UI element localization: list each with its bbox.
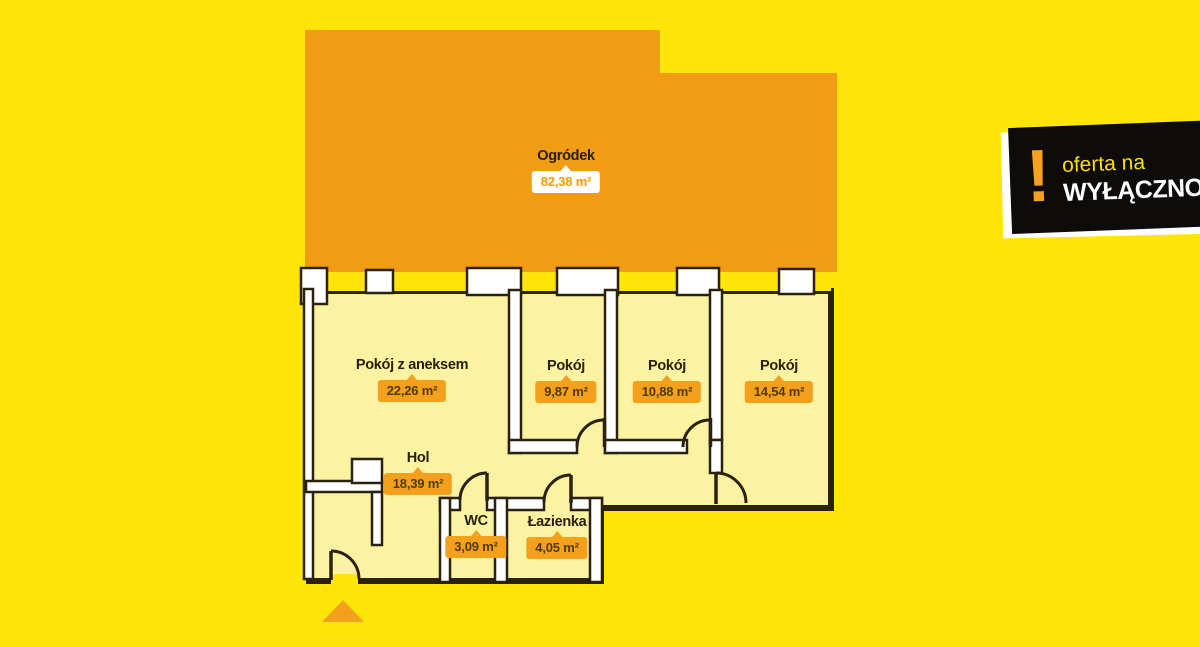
wall xyxy=(605,290,617,453)
room-area-badge: 10,88 m² xyxy=(633,381,701,403)
room-label-pokoj-1: Pokój 9,87 m² xyxy=(535,358,596,403)
window xyxy=(779,269,814,294)
garden-label: Ogródek 82,38 m² xyxy=(532,148,600,193)
wall xyxy=(605,440,687,453)
room-name: Pokój z aneksem xyxy=(356,357,468,373)
wall xyxy=(509,290,521,453)
room-area-badge: 18,39 m² xyxy=(384,473,452,495)
entrance-opening xyxy=(331,574,358,587)
garden-name: Ogródek xyxy=(532,148,600,164)
shaft xyxy=(352,459,382,483)
wall xyxy=(710,290,722,440)
window xyxy=(366,270,393,293)
room-name: Pokój xyxy=(745,358,813,374)
room-name: WC xyxy=(445,513,506,529)
room-area-badge: 22,26 m² xyxy=(378,380,446,402)
left-wall xyxy=(304,289,313,579)
listing-floorplan-page: { "plan": { "garden": { "label": "Ogróde… xyxy=(0,0,1200,647)
entrance-arrow-icon xyxy=(322,600,364,622)
room-name: Hol xyxy=(384,450,452,466)
room-name: Pokój xyxy=(633,358,701,374)
wall xyxy=(590,498,602,582)
exclusive-offer-sticker: ! oferta na WYŁĄCZNOŚĆ xyxy=(996,112,1200,244)
sticker-line2: WYŁĄCZNOŚĆ xyxy=(1063,172,1200,207)
room-label-lazienka: Łazienka 4,05 m² xyxy=(526,514,587,559)
room-area-badge: 9,87 m² xyxy=(535,381,596,403)
room-label-pokoj-z-aneksem: Pokój z aneksem 22,26 m² xyxy=(356,357,468,402)
room-name: Łazienka xyxy=(526,514,587,530)
room-label-pokoj-3: Pokój 14,54 m² xyxy=(745,358,813,403)
wall xyxy=(509,440,577,453)
garden-area-badge: 82,38 m² xyxy=(532,171,600,193)
room-area-badge: 4,05 m² xyxy=(526,537,587,559)
room-name: Pokój xyxy=(535,358,596,374)
room-area-badge: 14,54 m² xyxy=(745,381,813,403)
sticker-text: oferta na WYŁĄCZNOŚĆ xyxy=(1062,146,1200,207)
wall xyxy=(372,492,382,545)
room-label-wc: WC 3,09 m² xyxy=(445,513,506,558)
room-label-hol: Hol 18,39 m² xyxy=(384,450,452,495)
room-label-pokoj-2: Pokój 10,88 m² xyxy=(633,358,701,403)
room-area-badge: 3,09 m² xyxy=(445,536,506,558)
sticker-face: ! oferta na WYŁĄCZNOŚĆ xyxy=(1008,120,1200,234)
exclamation-icon: ! xyxy=(1025,143,1052,209)
floor-plan xyxy=(0,0,1200,647)
